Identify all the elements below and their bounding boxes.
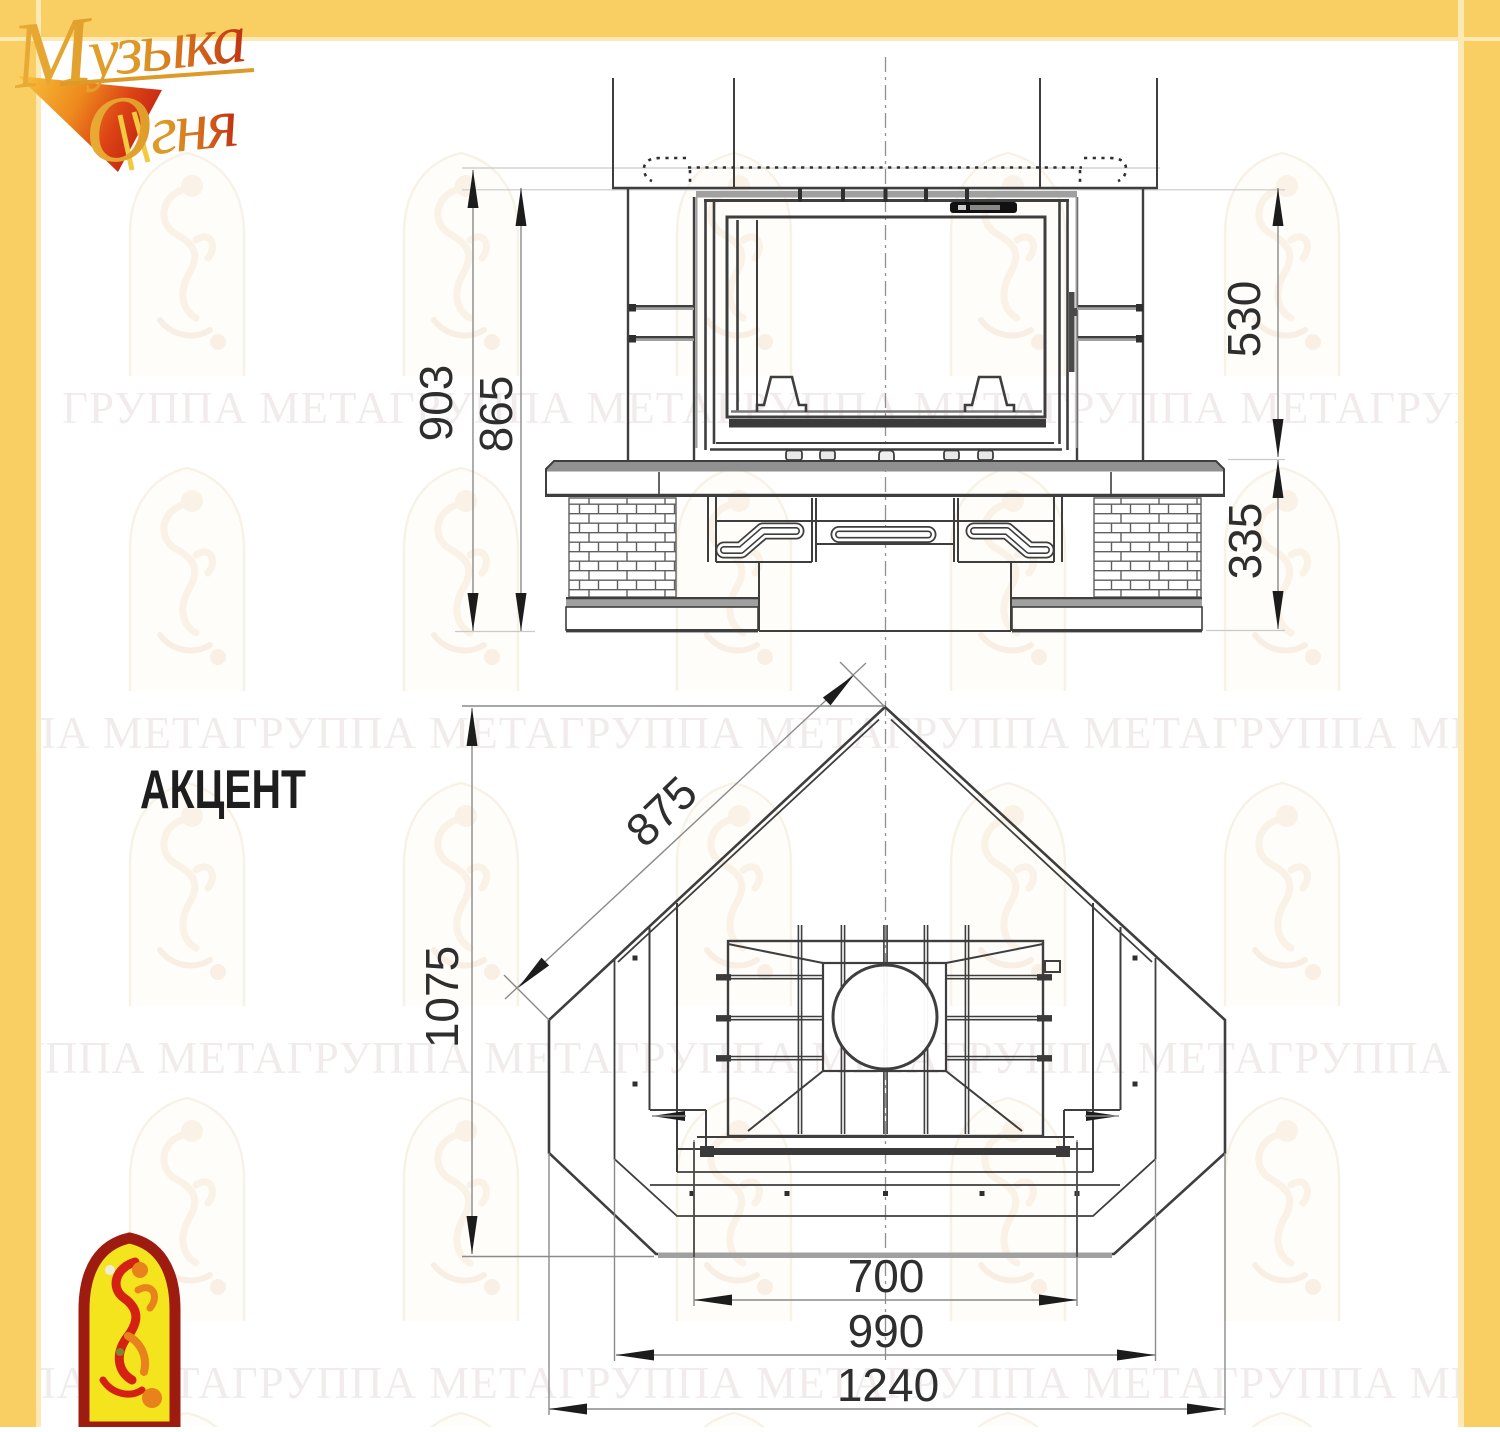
- svg-text:990: 990: [848, 1305, 925, 1357]
- svg-text:1075: 1075: [416, 946, 468, 1048]
- svg-text:1240: 1240: [837, 1359, 939, 1411]
- svg-text:530: 530: [1218, 281, 1270, 358]
- svg-text:700: 700: [848, 1250, 925, 1302]
- svg-text:ГРУППА МЕТАГРУППА МЕТАГРУППА М: ГРУППА МЕТАГРУППА МЕТАГРУППА МЕТАГРУППА …: [0, 1358, 1500, 1408]
- svg-text:335: 335: [1219, 503, 1271, 580]
- svg-text:АКЦЕНТ: АКЦЕНТ: [140, 758, 306, 820]
- svg-text:903: 903: [410, 365, 462, 442]
- svg-text:ГРУППА МЕТАГРУППА МЕТАГРУППА М: ГРУППА МЕТАГРУППА МЕТАГРУППА МЕТАГРУППА …: [0, 1033, 1500, 1083]
- svg-text:ГРУППА МЕТАГРУППА МЕТАГРУППА М: ГРУППА МЕТАГРУППА МЕТАГРУППА МЕТАГРУППА …: [0, 708, 1500, 758]
- svg-text:865: 865: [470, 376, 522, 453]
